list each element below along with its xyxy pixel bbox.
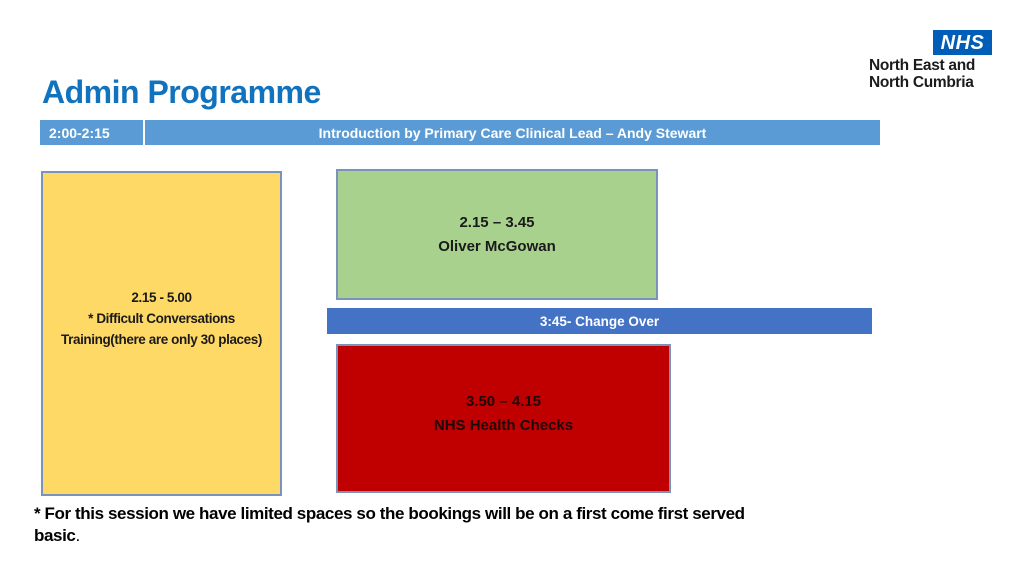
- event-time: 2.15 - 5.00: [131, 288, 191, 309]
- page-title: Admin Programme: [42, 76, 321, 108]
- schedule-header-row: 2:00-2:15 Introduction by Primary Care C…: [40, 120, 880, 145]
- nhs-logo-text: NHS: [941, 33, 985, 53]
- event-time: 3.50 – 4.15: [466, 390, 541, 413]
- event-title-line: Training(there are only 30 places): [61, 330, 262, 351]
- nhs-org-name: North East and North Cumbria: [869, 57, 975, 91]
- event-box-difficult-conversations: 2.15 - 5.00 * Difficult Conversations Tr…: [41, 171, 282, 496]
- nhs-org-line2: North Cumbria: [869, 74, 975, 91]
- footnote-period: .: [75, 526, 79, 545]
- header-session-cell: Introduction by Primary Care Clinical Le…: [145, 120, 880, 145]
- event-title-line: * Difficult Conversations: [88, 309, 235, 330]
- nhs-org-line1: North East and: [869, 57, 975, 74]
- event-time: 2.15 – 3.45: [459, 211, 534, 234]
- event-title-line: Oliver McGowan: [438, 235, 556, 258]
- footnote-line2-word: basic: [34, 526, 75, 545]
- footnote-line2: basic.: [34, 525, 745, 547]
- event-title-line: NHS Health Checks: [434, 414, 573, 437]
- event-box-nhs-health-checks: 3.50 – 4.15 NHS Health Checks: [336, 344, 671, 493]
- header-time-cell: 2:00-2:15: [40, 120, 145, 145]
- changeover-bar: 3:45- Change Over: [327, 308, 872, 334]
- nhs-logo-icon: NHS: [933, 30, 992, 55]
- footnote-line1: * For this session we have limited space…: [34, 503, 745, 525]
- footnote: * For this session we have limited space…: [34, 503, 745, 547]
- event-box-oliver-mcgowan: 2.15 – 3.45 Oliver McGowan: [336, 169, 658, 300]
- slide: Admin Programme NHS North East and North…: [0, 0, 1024, 576]
